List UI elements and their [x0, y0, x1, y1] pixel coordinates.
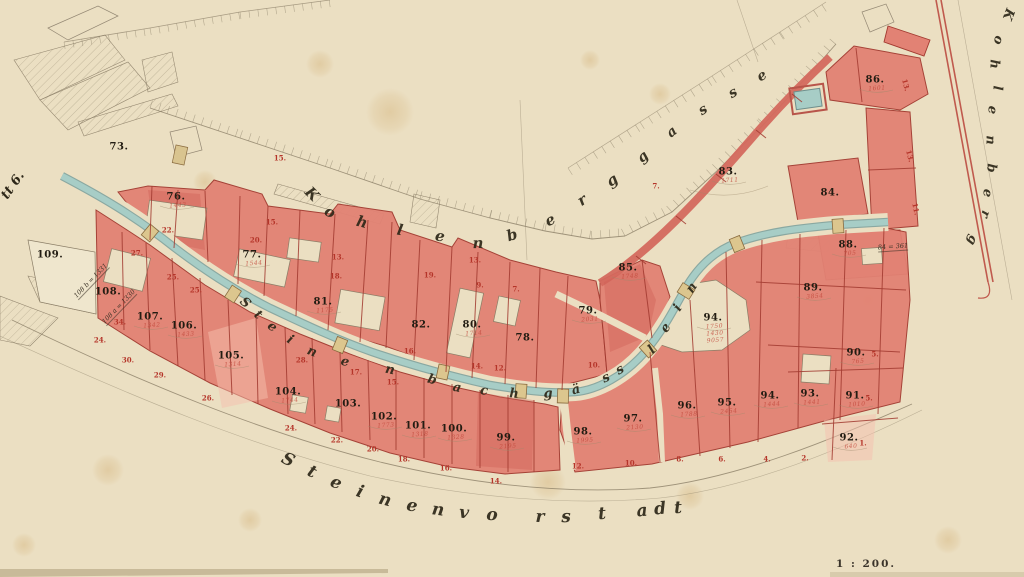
bridge: [515, 384, 527, 399]
parcel-shade-deep: [476, 390, 534, 470]
bridge: [832, 219, 844, 234]
courtyard: [325, 406, 341, 422]
bridge: [436, 364, 450, 380]
paper-stain: [238, 508, 262, 532]
paper-stain: [580, 50, 600, 70]
courtyard: [801, 354, 831, 384]
courtyard: [335, 289, 385, 330]
paper-stain: [649, 83, 671, 105]
courtyard: [287, 238, 321, 262]
map-canvas: tt 6. 1 : 200. 73.76.144377.154481.11758…: [0, 0, 1024, 577]
courtyard: [861, 247, 882, 264]
paper-stain: [306, 50, 334, 78]
hatch-area: [410, 194, 440, 228]
paper-stain: [366, 88, 414, 136]
paper-stain: [12, 533, 36, 557]
parcel-block-84: [788, 158, 868, 222]
map-drawing: [0, 0, 1024, 577]
paper-stain: [92, 454, 124, 486]
paper-stain: [934, 526, 962, 554]
paper-stain: [676, 482, 704, 510]
bridge: [557, 389, 568, 403]
